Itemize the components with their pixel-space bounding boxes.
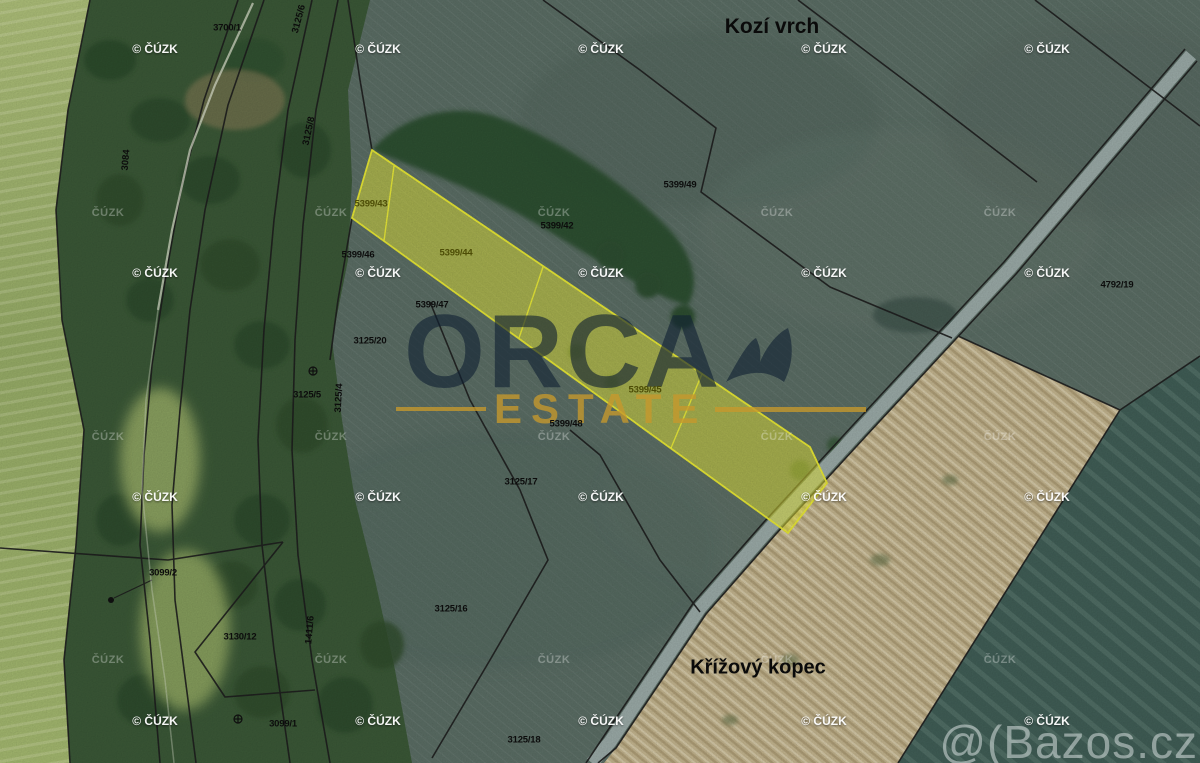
grain-overlay bbox=[0, 0, 1200, 763]
satellite-terrain bbox=[0, 0, 1200, 763]
cadastral-satellite-map: © ČÚZK© ČÚZK© ČÚZK© ČÚZK© ČÚZK© ČÚZK© ČÚ… bbox=[0, 0, 1200, 763]
